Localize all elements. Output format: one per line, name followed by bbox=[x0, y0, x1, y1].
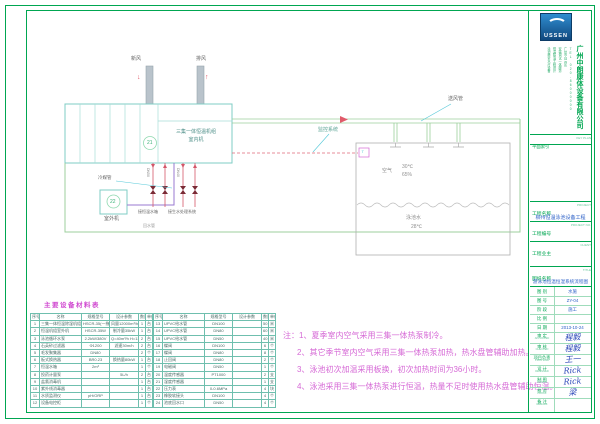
equipment-table: 序号名称规格型号设计参数数量单位1三集一体恒温除湿机组HSCR-35(一拖一·室… bbox=[30, 313, 276, 408]
eq-col-header: 名称 bbox=[163, 314, 205, 321]
info-value: 施工 bbox=[554, 305, 591, 314]
eq-col-header: 序号 bbox=[154, 314, 163, 321]
signature-label-cell: 项目负责PROJ MGR bbox=[530, 354, 555, 365]
equipment-table-title: 主要设备材料表 bbox=[44, 303, 100, 310]
project-name-en: PROJECT bbox=[577, 202, 591, 207]
eq-table-row: 5毛发聚集器DN802个 bbox=[31, 350, 153, 357]
duct-flow-arrow bbox=[340, 116, 348, 123]
eq-table-row: 22压力表0-0.6MPa4块 bbox=[154, 386, 276, 393]
company-info-lines: 泳池桑拿水疗设备恒温除湿工程设计安装调试一体服务广州市白云区TEL 020-86… bbox=[546, 47, 572, 129]
drawing-sheet: 新风 排风 ↓ ↑ 三集一体恒温机组 室内机 21 22 室外机 冷媒管 DN5… bbox=[0, 0, 600, 424]
client-value-row bbox=[530, 251, 591, 267]
design-notes: 注：1、夏季室内空气采用三集一体热泵制冷。2、其它季节室内空气采用三集一体热泵加… bbox=[283, 327, 533, 395]
project-no-value-row bbox=[530, 231, 591, 242]
fresh-air-arrow-icon: ↓ bbox=[137, 74, 141, 81]
fresh-air-duct bbox=[146, 66, 153, 104]
project-no-en: PROJECT NO. bbox=[571, 222, 591, 227]
eq-table-row: 18止回阀DN802个 bbox=[154, 357, 276, 364]
eq-col-header: 名称 bbox=[40, 314, 82, 321]
drawing-title-row: 图纸名称 TITLE bbox=[530, 267, 591, 276]
project-name-value-row: 柳州恒温泳池设备工程 bbox=[530, 211, 591, 222]
swimmer-icon bbox=[547, 18, 567, 32]
company-name: 广州中朗康体设备有限公司 bbox=[576, 45, 583, 133]
eq-table-row: 19电磁阀DN501个 bbox=[154, 364, 276, 371]
info-label: 图 别 bbox=[530, 287, 555, 296]
to-pool-tank-label: 接恒温水箱 bbox=[138, 210, 158, 214]
remark-value bbox=[554, 398, 591, 412]
project-name-value: 柳州恒温泳池设备工程 bbox=[530, 211, 591, 221]
equipment-table-left: 序号名称规格型号设计参数数量单位1三集一体恒温除湿机组HSCR-35(一拖一·室… bbox=[30, 313, 153, 408]
project-no-value bbox=[530, 231, 591, 234]
note-line: 4、泳池采用三集一体热泵进行恒温，热量不足时使用热水盘管辅助恒温。 bbox=[283, 378, 533, 395]
eq-table-row: 14UPVC给水管DN8060米 bbox=[154, 328, 276, 335]
sensor-box bbox=[359, 148, 369, 157]
signature-label-en: APPROVED bbox=[530, 338, 554, 341]
remark-row: 备 注 REMARK bbox=[530, 398, 591, 412]
eq-table-row: 6板式换热器BR0.23换热量80kW1台 bbox=[31, 357, 153, 364]
indoor-unit-tag: 21 bbox=[147, 140, 153, 146]
sensor-icon: T bbox=[362, 150, 364, 154]
note-line: 3、泳池初次加温采用板换，初次加热时间为36小时。 bbox=[283, 361, 533, 378]
signature-label-cell: 校 对PROOF bbox=[530, 387, 555, 398]
pipe-size-tag-a: DN50 bbox=[146, 168, 150, 177]
company-info-line: 广州市白云区 bbox=[563, 47, 567, 129]
eq-table-row: 11水质监测仪pH/ORP1台 bbox=[31, 393, 153, 400]
drawing-title-value: 游泳池恒温恒湿系统流程图 bbox=[530, 276, 591, 285]
eq-col-header: 规格型号 bbox=[82, 314, 110, 321]
eq-table-row: 17蝶阀DN808个 bbox=[154, 350, 276, 357]
signature-label-en: PROJ MGR bbox=[530, 360, 554, 363]
outdoor-unit-tag: 22 bbox=[110, 199, 116, 205]
eq-col-header: 规格型号 bbox=[205, 314, 233, 321]
info-label: 图 号 bbox=[530, 296, 555, 305]
water-surface-line bbox=[357, 203, 509, 207]
return-pipe-label: 回水管 bbox=[143, 224, 155, 228]
eq-table-row: 13UPVC给水管DN10050米 bbox=[154, 321, 276, 328]
eq-table-row: 7恒温水箱2m³1个 bbox=[31, 364, 153, 371]
client-value bbox=[530, 251, 591, 254]
eq-table-row: 21湿度传感器1支 bbox=[154, 378, 276, 385]
signature-label-en: DRAWN bbox=[530, 382, 554, 385]
company-info-line: 恒温除湿工程设计 bbox=[552, 47, 556, 129]
indoor-unit-subname: 室内机 bbox=[160, 137, 232, 145]
company-info-line: TEL 020-86000000 bbox=[568, 47, 572, 129]
company-info-line: 泳池桑拿水疗设备 bbox=[546, 47, 550, 129]
air-humidity-value: 65% bbox=[402, 173, 412, 178]
drawing-title-en: TITLE bbox=[583, 267, 591, 272]
eq-table-row: 8投药计量泵5L/h2台 bbox=[31, 371, 153, 378]
eq-table-row: 24池底回水口DN504个 bbox=[154, 400, 276, 407]
company-logo: USSEN bbox=[540, 13, 572, 41]
pipe-size-tag-b: DN40 bbox=[176, 168, 180, 177]
air-temp-value: 30℃ bbox=[402, 165, 413, 170]
eq-table-row: 15UPVC给水管DN5040米 bbox=[154, 335, 276, 342]
exhaust-air-label: 排风 bbox=[196, 57, 206, 62]
outdoor-unit-label: 室外机 bbox=[104, 217, 119, 222]
exhaust-air-arrow-icon: ↑ bbox=[205, 74, 209, 81]
eq-table-row: 9盐氯消毒机1台 bbox=[31, 378, 153, 385]
keyplan-box bbox=[530, 145, 591, 202]
to-water-treatment-label: 接生水处理系统 bbox=[168, 210, 196, 214]
eq-col-header: 序号 bbox=[31, 314, 40, 321]
exhaust-air-duct bbox=[197, 66, 204, 104]
note-line: 注：1、夏季室内空气采用三集一体热泵制冷。 bbox=[283, 327, 533, 344]
info-label: 日 期 bbox=[530, 323, 555, 332]
keyplan-en: KEY PLAN bbox=[576, 135, 591, 140]
refrigerant-pipe-line bbox=[127, 163, 174, 205]
signature-grid: 审 定APPROVED程毅审 核CHECKED程毅项目负责PROJ MGR王一设… bbox=[529, 332, 591, 398]
pool-water-label: 泳池水 bbox=[406, 216, 421, 221]
logo-text: USSEN bbox=[541, 33, 571, 39]
remark-label-cell: 备 注 REMARK bbox=[530, 398, 555, 412]
signature-label-cell: 审 定APPROVED bbox=[530, 332, 555, 343]
eq-table-row: 1三集一体恒温除湿机组HSCR-35(一拖一·室内机)风量12000m³/h1台 bbox=[31, 321, 153, 328]
eq-table-row: 10紫外线消毒器1台 bbox=[31, 386, 153, 393]
signature-label-cell: 审 核CHECKED bbox=[530, 343, 555, 354]
info-value: ZY-04 bbox=[554, 296, 591, 305]
pool-room-box bbox=[356, 143, 510, 255]
client-en: CLIENT bbox=[580, 242, 591, 247]
signature-label-en: PROOF bbox=[530, 393, 554, 396]
eq-table-row: 20温度传感器PT10002支 bbox=[154, 371, 276, 378]
info-value bbox=[554, 314, 591, 323]
eq-table-row: 4石英砂过滤器Φ1200滤速30m/h2台 bbox=[31, 342, 153, 349]
project-name-row: 工程名称 PROJECT bbox=[530, 202, 591, 211]
monitor-system-label: 监控系统 bbox=[318, 128, 338, 133]
supply-duct-line bbox=[232, 119, 520, 123]
eq-table-row: 23橡胶软接头DN1004个 bbox=[154, 393, 276, 400]
eq-col-header: 数量 bbox=[262, 314, 269, 321]
eq-col-header: 设计参数 bbox=[110, 314, 139, 321]
signature-label-en: DESIGNED bbox=[530, 371, 554, 374]
fresh-air-label: 新风 bbox=[131, 57, 141, 62]
indoor-unit-label: 三集一体恒温机组 室内机 bbox=[160, 129, 232, 144]
signature-label-en: CHECKED bbox=[530, 349, 554, 352]
keyplan-header: 平面索引 KEY PLAN bbox=[530, 135, 591, 145]
pool-temp-value: 28℃ bbox=[411, 225, 422, 230]
pool-water-loop-pipe bbox=[65, 119, 520, 232]
signature-label-cell: 制 图DRAWN bbox=[530, 376, 555, 387]
air-label: 空气 bbox=[382, 169, 392, 174]
info-label: 比 例 bbox=[530, 314, 555, 323]
eq-col-header: 单位 bbox=[146, 314, 153, 321]
client-row: 工程业主 CLIENT bbox=[530, 242, 591, 251]
eq-table-row: 16蝶阀DN1006个 bbox=[154, 342, 276, 349]
signature-label-cell: 设 计DESIGNED bbox=[530, 365, 555, 376]
info-value: 水施 bbox=[554, 287, 591, 296]
eq-table-row: 12设备电控柜1个 bbox=[31, 400, 153, 407]
air-diffusers bbox=[390, 143, 464, 147]
refrigerant-pipe-label: 冷媒管 bbox=[98, 176, 112, 181]
company-info-line: 安装调试一体服务 bbox=[557, 47, 561, 129]
drawing-info-grid: 图 别水施图 号ZY-04阶 段施工比 例日 期2013-10-24 bbox=[529, 287, 591, 332]
eq-table-row: 2恒温机组室外机HSCR-35W制冷量35kW1台 bbox=[31, 328, 153, 335]
supply-duct-label: 送风管 bbox=[448, 97, 463, 102]
project-no-row: 工程编号 PROJECT NO. bbox=[530, 222, 591, 231]
drawing-title-value-row: 游泳池恒温恒湿系统流程图 bbox=[530, 276, 591, 287]
eq-table-row: 3泳池循环水泵2.2kW/380VQ=40m³/h H=13m2台 bbox=[31, 335, 153, 342]
eq-col-header: 数量 bbox=[139, 314, 146, 321]
note-line: 2、其它季节室内空气采用三集一体热泵加热，热水盘管辅助加热。 bbox=[283, 344, 533, 361]
supply-duct-drops bbox=[394, 123, 460, 142]
indoor-unit-name: 三集一体恒温机组 bbox=[160, 129, 232, 137]
eq-col-header: 单位 bbox=[269, 314, 276, 321]
info-label: 阶 段 bbox=[530, 305, 555, 314]
equipment-table-right: 序号名称规格型号设计参数数量单位13UPVC给水管DN10050米14UPVC给… bbox=[153, 313, 276, 408]
leader-lines bbox=[116, 104, 451, 188]
eq-col-header: 设计参数 bbox=[233, 314, 262, 321]
remark-en: REMARK bbox=[530, 404, 554, 407]
